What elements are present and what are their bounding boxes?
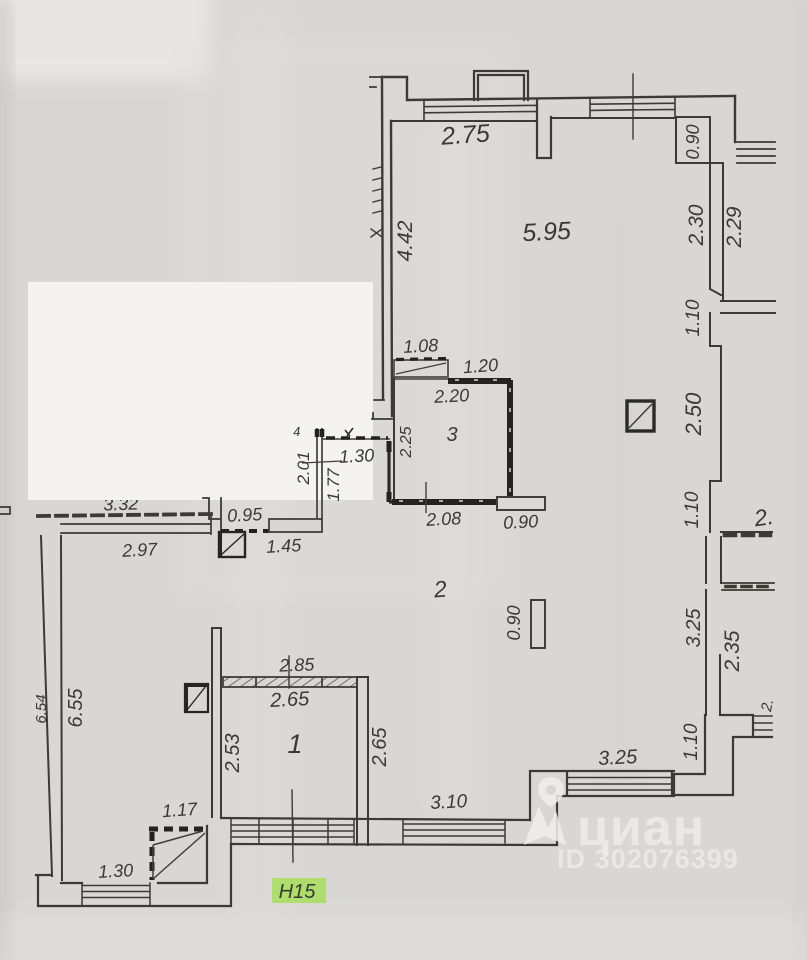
svg-text:4: 4 <box>293 424 301 439</box>
svg-text:2.53: 2.53 <box>222 734 244 774</box>
svg-text:5.95: 5.95 <box>522 217 572 248</box>
svg-text:ID 302076399: ID 302076399 <box>557 844 739 874</box>
svg-text:0.95: 0.95 <box>227 504 264 526</box>
svg-text:6.55: 6.55 <box>65 688 87 728</box>
svg-text:1.08: 1.08 <box>403 335 439 357</box>
svg-text:2.35: 2.35 <box>721 630 744 672</box>
svg-text:2.97: 2.97 <box>121 539 159 561</box>
svg-text:6.54: 6.54 <box>33 694 50 723</box>
svg-text:1.20: 1.20 <box>462 355 498 377</box>
svg-text:1.17: 1.17 <box>161 799 198 821</box>
svg-text:Н15: Н15 <box>279 881 317 903</box>
svg-text:1.45: 1.45 <box>266 535 303 557</box>
svg-text:2.65: 2.65 <box>369 727 391 768</box>
svg-text:1.30: 1.30 <box>98 860 134 882</box>
svg-text:3: 3 <box>446 424 457 446</box>
svg-text:2.: 2. <box>752 503 776 532</box>
svg-text:1: 1 <box>287 729 302 759</box>
svg-text:2.01: 2.01 <box>294 451 313 485</box>
svg-text:4.42: 4.42 <box>394 220 417 261</box>
svg-text:3.10: 3.10 <box>430 791 468 814</box>
svg-text:1.10: 1.10 <box>683 299 704 336</box>
svg-text:3.25: 3.25 <box>598 746 639 770</box>
svg-text:2.29: 2.29 <box>723 206 746 248</box>
svg-text:0.90: 0.90 <box>504 605 524 640</box>
svg-text:1.30: 1.30 <box>339 445 375 467</box>
svg-text:0.90: 0.90 <box>503 511 539 533</box>
svg-text:2.25: 2.25 <box>398 426 415 458</box>
svg-text:1.10: 1.10 <box>682 491 703 528</box>
svg-text:2.65: 2.65 <box>269 688 311 712</box>
svg-text:2.50: 2.50 <box>681 392 706 437</box>
svg-text:1.10: 1.10 <box>681 723 702 760</box>
svg-text:2: 2 <box>432 576 448 603</box>
svg-text:2.20: 2.20 <box>433 385 470 407</box>
svg-text:2.85: 2.85 <box>278 654 316 675</box>
svg-text:2.08: 2.08 <box>425 508 462 530</box>
svg-text:3.25: 3.25 <box>683 608 705 648</box>
svg-text:2.30: 2.30 <box>685 204 708 246</box>
svg-text:0.90: 0.90 <box>683 124 703 159</box>
svg-text:2.75: 2.75 <box>439 119 491 150</box>
svg-text:1.77: 1.77 <box>324 468 343 502</box>
